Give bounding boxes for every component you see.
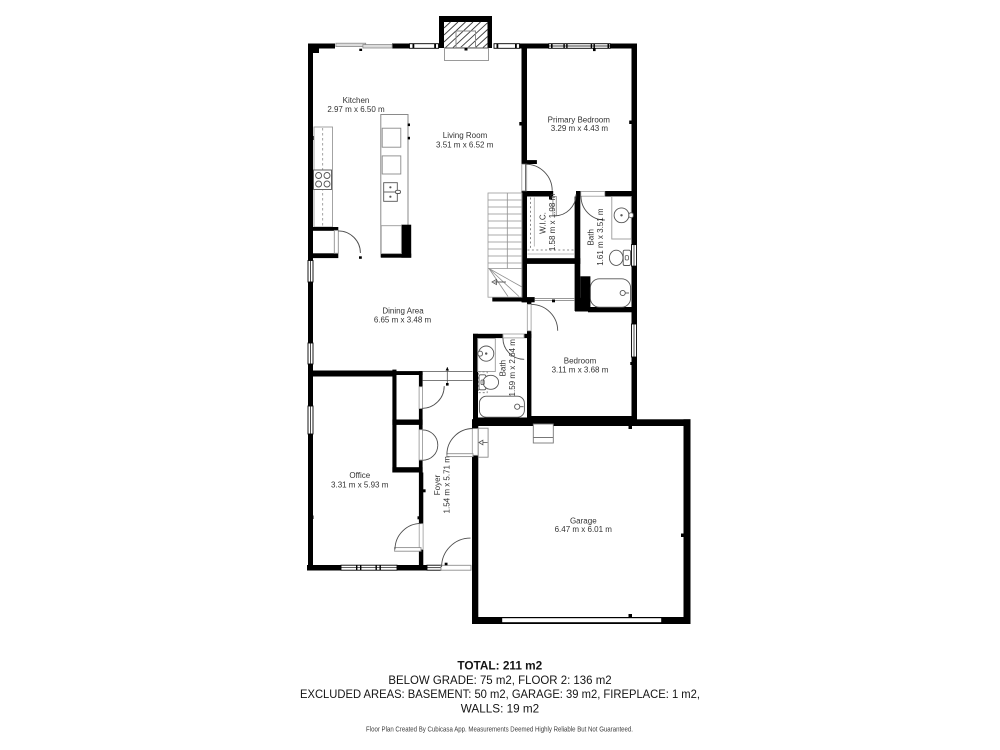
svg-text:Bedroom: Bedroom (564, 357, 597, 366)
svg-text:Kitchen: Kitchen (343, 96, 370, 105)
svg-text:Office: Office (349, 471, 370, 480)
svg-text:TOTAL: 211 m2: TOTAL: 211 m2 (457, 658, 542, 672)
svg-text:WALLS: 19 m2: WALLS: 19 m2 (461, 702, 540, 716)
svg-text:BELOW GRADE: 75 m2, FLOOR 2: 1: BELOW GRADE: 75 m2, FLOOR 2: 136 m2 (388, 673, 612, 687)
svg-text:6.47 m x 6.01 m: 6.47 m x 6.01 m (555, 525, 613, 534)
svg-text:2.97 m x 6.50 m: 2.97 m x 6.50 m (327, 105, 385, 114)
svg-text:3.11 m x 3.68 m: 3.11 m x 3.68 m (552, 366, 609, 375)
svg-text:3.29 m x 4.43 m: 3.29 m x 4.43 m (551, 124, 609, 133)
svg-text:EXCLUDED AREAS: BASEMENT: 50 m: EXCLUDED AREAS: BASEMENT: 50 m2, GARAGE:… (300, 687, 700, 701)
svg-text:6.65 m x 3.48 m: 6.65 m x 3.48 m (374, 315, 432, 324)
svg-text:Floor Plan Created By Cubicasa: Floor Plan Created By Cubicasa App. Meas… (366, 727, 633, 734)
svg-text:3.31 m x 5.93 m: 3.31 m x 5.93 m (331, 481, 389, 490)
svg-text:Living Room: Living Room (443, 131, 488, 140)
svg-text:3.51 m x 6.52 m: 3.51 m x 6.52 m (436, 140, 494, 149)
svg-text:Dining Area: Dining Area (382, 306, 424, 315)
